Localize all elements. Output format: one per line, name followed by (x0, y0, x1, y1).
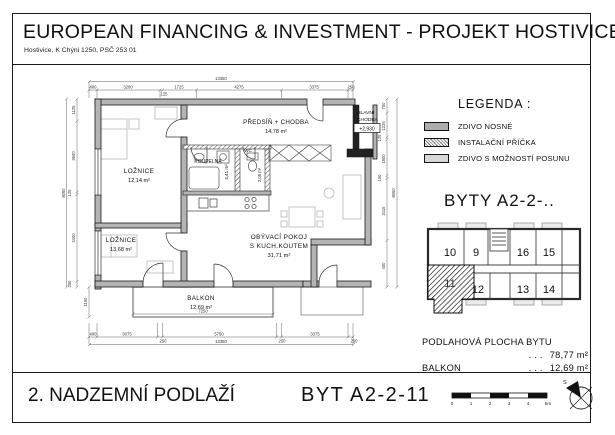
neighbor-balcony (301, 287, 363, 315)
floor-area-label: PODLAHOVÁ PLOCHA BYTU (422, 337, 588, 347)
install-partition (183, 145, 271, 149)
dimension-labels: 13350 400 3200 125 1725 4275 3375 250 13… (61, 76, 396, 344)
dim-label: 250 (160, 339, 168, 344)
north-label: S (563, 380, 567, 386)
install-partition (235, 149, 240, 195)
sheet-frame: EUROPEAN FINANCING & INVESTMENT - PROJEK… (12, 13, 591, 423)
dim-label: 250 (67, 280, 72, 288)
legend-swatch-install-partition (424, 138, 449, 147)
unit-number: 16 (517, 247, 529, 259)
room-label: S KUCH.KOUTEM (250, 243, 308, 250)
unit-number: 12 (472, 284, 484, 296)
kitchen (187, 195, 269, 211)
dim-label: 5750 (214, 332, 224, 337)
unit-number-highlighted: 11 (444, 278, 455, 290)
dim-label: 7250 (198, 309, 208, 314)
dim-label: 125 (377, 134, 382, 142)
north-arrow-icon: S (561, 375, 601, 417)
room-area: 13,68 m² (110, 247, 132, 253)
room-area: 12,14 m² (128, 178, 150, 184)
door-loznice2 (166, 233, 184, 251)
scale-labels: 0 1 2 3 4 5m (451, 401, 551, 406)
legend-item: INSTALAČNÍ PŘÍČKA (424, 136, 536, 148)
dim-label: 1100 (83, 297, 88, 307)
elevation-value: +2,930 (359, 126, 375, 132)
stove-burner (245, 197, 249, 201)
bed-loznice1 (101, 119, 127, 159)
coffee-table (324, 188, 334, 198)
dim-label: 3200 (123, 84, 133, 89)
dim-label: 250 (348, 84, 356, 89)
dim-label: 150 (377, 174, 382, 182)
scale-tick: 3 (508, 401, 511, 406)
unit-number: 15 (543, 247, 555, 259)
sofa (343, 175, 361, 219)
dots: . . . (529, 350, 543, 360)
north-pointer (566, 381, 581, 398)
room-area: 2,05 m² (257, 167, 262, 182)
floor-area-row: . . . 78,77 m² (422, 350, 588, 360)
dim-label: 8060 (61, 188, 66, 198)
key-plan-title: BYTY A2-2-.. (444, 191, 555, 211)
room-label: WC (244, 148, 252, 153)
company-title: EUROPEAN FINANCING & INVESTMENT - PROJEK… (23, 21, 615, 44)
room-area: 31,71 m² (268, 253, 291, 259)
toilet (248, 161, 256, 171)
dim-label: 3600 (71, 151, 76, 161)
room-area: 14,78 m² (265, 129, 287, 135)
dim-label: 1725 (174, 84, 184, 89)
dim-label: 400 (381, 262, 386, 270)
scale-tick: 1 (470, 401, 473, 406)
dim-label: 3375 (310, 332, 320, 337)
balcony-door-living (214, 264, 233, 283)
company-address: Hostivice, K Chýni 1250, PSČ 253 01 (24, 47, 137, 54)
dim-label: 250 (279, 339, 287, 344)
builtin-wardrobe (269, 145, 331, 161)
dim-label: 13350 (215, 76, 227, 81)
unit-number: 13 (517, 284, 529, 296)
drawing-sheet: EUROPEAN FINANCING & INVESTMENT - PROJEK… (0, 0, 615, 435)
room-label: LOŽNICE (124, 166, 155, 175)
legend-title: LEGENDA : (458, 97, 531, 111)
dim-label: 3115 (381, 206, 386, 216)
room-label: OBÝVACÍ POKOJ (251, 232, 308, 241)
dim-label: 250 (351, 339, 359, 344)
room-label: PŘEDSÍŇ + CHODBA (243, 118, 309, 126)
dim-label: 1225 (381, 121, 386, 131)
dim-label: 400 (90, 84, 98, 89)
kitchen-sink (199, 198, 208, 208)
dim-label: 700 (381, 102, 386, 110)
legend-label: INSTALAČNÍ PŘÍČKA (458, 138, 536, 147)
corridor-label: HLAVNÍ (357, 109, 375, 116)
room-label: BALKON (187, 295, 215, 302)
room-area: 4,41 m² (224, 164, 229, 180)
room-label: LOŽNICE (106, 235, 137, 244)
dim-label: 400 (90, 332, 98, 337)
apartment-number: BYT A2-2-11 (301, 384, 430, 407)
dim-label: 4275 (234, 84, 244, 89)
area-summary: PODLAHOVÁ PLOCHA BYTU . . . 78,77 m² BAL… (422, 337, 588, 373)
unit-number: 9 (473, 247, 479, 259)
dim-label: 125 (67, 189, 72, 197)
dim-label: 13350 (215, 339, 227, 344)
door-loznice1 (166, 119, 184, 137)
unit-number: 14 (543, 284, 555, 296)
dimensions (65, 80, 399, 346)
scale-tick: 0 (451, 401, 454, 406)
unit-number: 10 (444, 247, 456, 259)
floor-title: 2. NADZEMNÍ PODLAŽÍ (28, 385, 235, 407)
legend-label: ZDIVO NOSNÉ (458, 122, 513, 131)
room-label: KOUPELNA (194, 159, 222, 165)
entrance-door (307, 105, 323, 121)
legend-label: ZDIVO S MOŽNOSTÍ POSUNU (458, 154, 570, 163)
dim-label: 1800 (381, 154, 386, 164)
dim-label: 1125 (71, 105, 76, 115)
floor-plan: LOŽNICE 12,14 m² LOŽNICE 13,68 m² PŘEDSÍ… (51, 71, 411, 371)
dim-label: 3375 (309, 84, 319, 89)
floor-area-value: 78,77 m² (550, 350, 588, 360)
legend-swatch-movable-wall (424, 154, 449, 163)
title-block-header: EUROPEAN FINANCING & INVESTMENT - PROJEK… (13, 14, 590, 65)
balcony-outline (133, 287, 363, 317)
balcony-door-neighbor (319, 265, 337, 283)
furniture (101, 107, 361, 273)
dim-label: 3075 (122, 332, 132, 337)
dim-label: 4400 (71, 233, 76, 243)
dim-label: 8060 (391, 188, 396, 198)
legend-swatch-load-bearing (424, 122, 449, 131)
nightstand (129, 119, 139, 129)
wardrobe-loznice1 (155, 107, 177, 119)
legend-item: ZDIVO NOSNÉ (424, 120, 513, 132)
dim-label: 125 (161, 92, 169, 97)
title-block-footer: 2. NADZEMNÍ PODLAŽÍ BYT A2-2-11 0 1 2 3 … (13, 372, 590, 422)
key-plan: 10 9 16 15 12 13 14 11 (418, 215, 590, 323)
scale-bar: 0 1 2 3 4 5m (451, 391, 555, 409)
scale-tick: 5m (545, 401, 552, 406)
scale-tick: 4 (527, 401, 530, 406)
bathtub (189, 167, 219, 189)
right-panel: LEGENDA : ZDIVO NOSNÉ INSTALAČNÍ PŘÍČKA … (416, 97, 596, 369)
legend-item: ZDIVO S MOŽNOSTÍ POSUNU (424, 152, 570, 164)
scale-tick: 2 (489, 401, 492, 406)
dining-table (289, 207, 315, 227)
corridor-label: CHODBA (357, 117, 379, 123)
